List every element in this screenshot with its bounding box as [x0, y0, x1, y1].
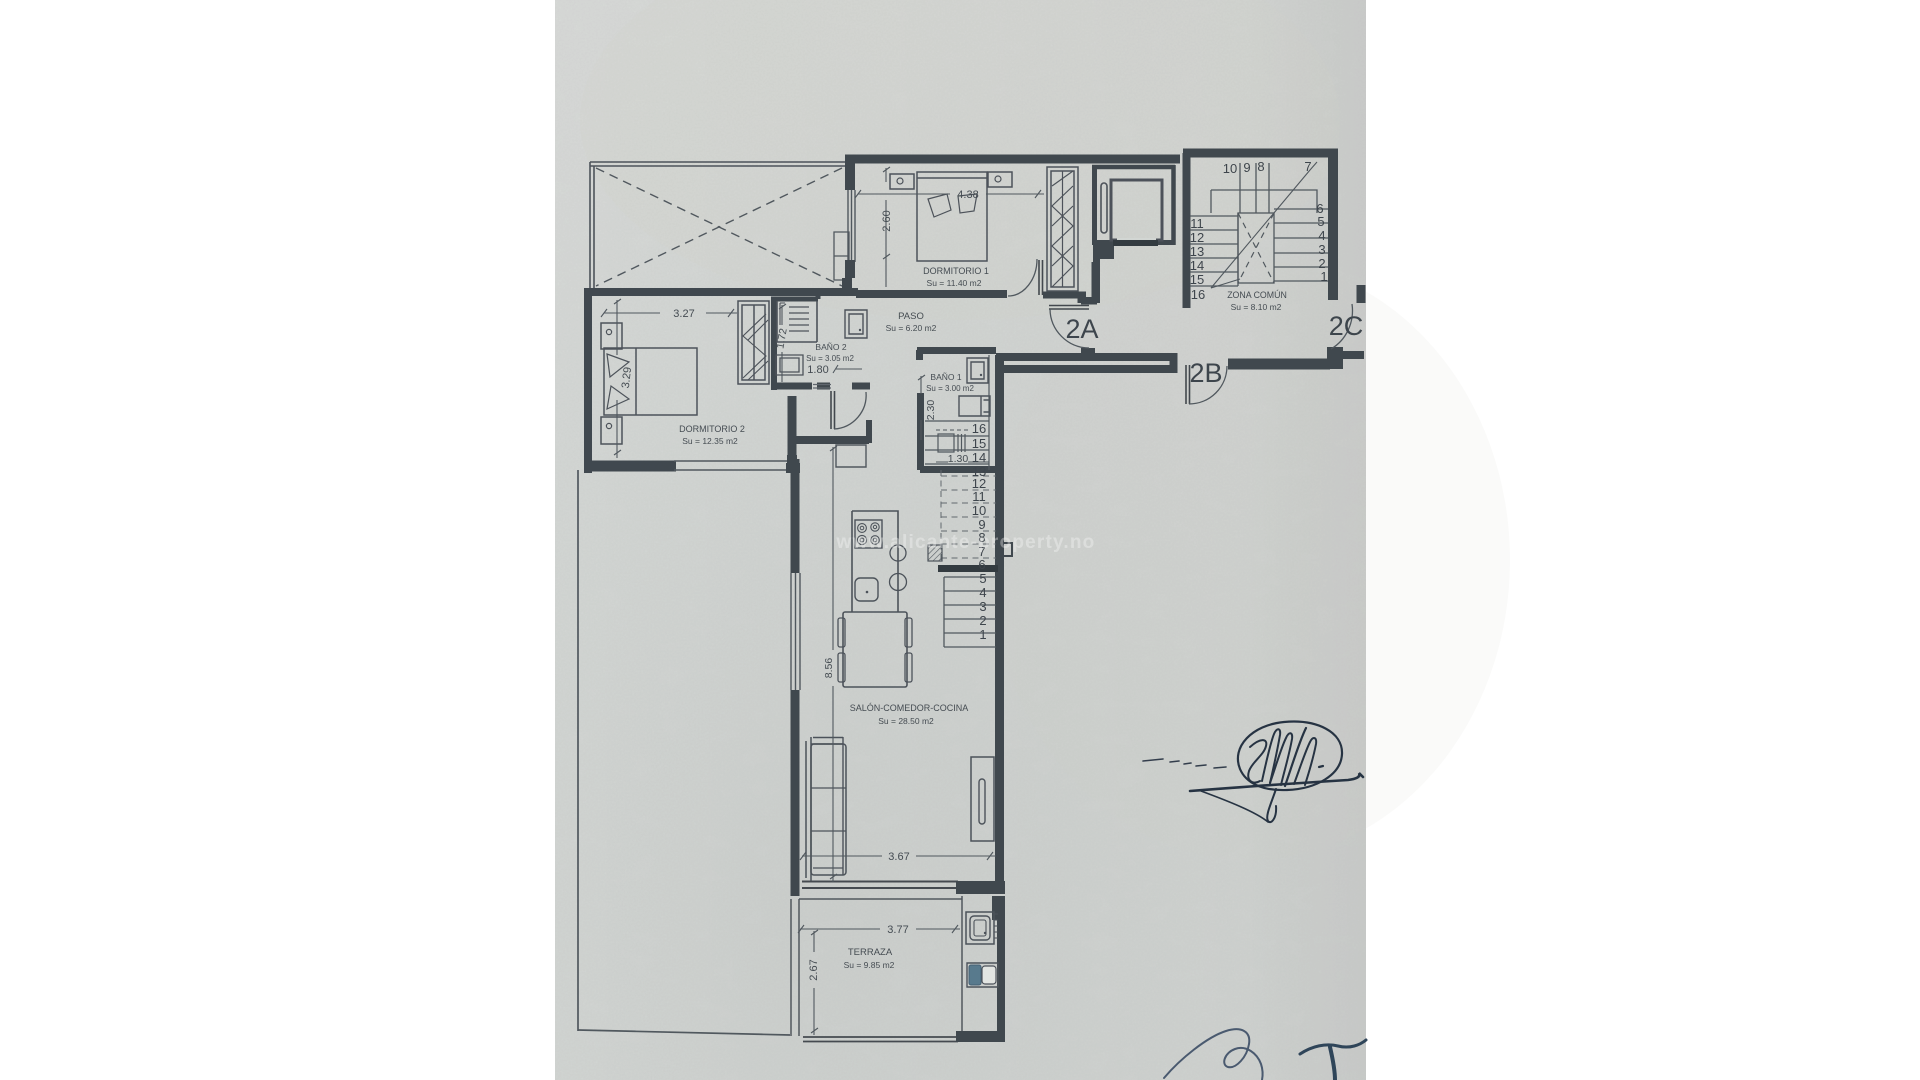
svg-text:16: 16 [972, 421, 986, 436]
svg-text:15: 15 [972, 436, 986, 451]
svg-text:15: 15 [1190, 272, 1204, 287]
svg-text:3: 3 [979, 599, 986, 614]
svg-text:14: 14 [972, 450, 986, 465]
svg-text:Su = 8.10 m2: Su = 8.10 m2 [1231, 302, 1282, 312]
svg-text:4: 4 [979, 585, 986, 600]
svg-text:BAÑO 1: BAÑO 1 [930, 372, 961, 382]
svg-text:Su = 28.50 m2: Su = 28.50 m2 [878, 716, 934, 726]
svg-text:11: 11 [1190, 216, 1204, 231]
svg-text:4: 4 [1318, 228, 1325, 243]
svg-text:SALÓN-COMEDOR-COCINA: SALÓN-COMEDOR-COCINA [850, 703, 969, 713]
svg-text:1.80: 1.80 [807, 364, 828, 376]
svg-text:14: 14 [1190, 258, 1204, 273]
svg-text:BAÑO 2: BAÑO 2 [815, 342, 846, 352]
svg-text:5: 5 [1317, 214, 1324, 229]
svg-text:ZONA COMÚN: ZONA COMÚN [1227, 290, 1287, 300]
svg-text:DORMITORIO 2: DORMITORIO 2 [679, 424, 745, 434]
svg-text:2.30: 2.30 [925, 400, 937, 421]
svg-text:4.38: 4.38 [957, 189, 978, 201]
svg-text:2.60: 2.60 [881, 210, 893, 231]
svg-text:2: 2 [979, 613, 986, 628]
svg-text:5: 5 [979, 571, 986, 586]
svg-text:PASO: PASO [898, 311, 924, 322]
svg-text:TERRAZA: TERRAZA [848, 947, 893, 958]
svg-text:10: 10 [972, 503, 986, 518]
svg-text:DORMITORIO 1: DORMITORIO 1 [923, 266, 989, 276]
svg-text:www.alicante-property.no: www.alicante-property.no [836, 532, 1096, 553]
svg-text:Su = 3.00 m2: Su = 3.00 m2 [926, 384, 974, 393]
svg-text:3.67: 3.67 [888, 851, 909, 863]
svg-text:8: 8 [1257, 159, 1264, 174]
svg-text:10: 10 [1223, 161, 1237, 176]
svg-text:2B: 2B [1189, 358, 1222, 388]
svg-text:7: 7 [1304, 159, 1311, 174]
svg-text:3.77: 3.77 [887, 924, 908, 936]
svg-text:1.30: 1.30 [948, 453, 969, 465]
svg-text:1: 1 [1320, 269, 1327, 284]
svg-text:2.67: 2.67 [808, 959, 820, 980]
svg-text:Su = 9.85 m2: Su = 9.85 m2 [844, 960, 895, 970]
svg-text:6: 6 [978, 557, 985, 572]
svg-text:2A: 2A [1065, 314, 1098, 344]
svg-text:1: 1 [979, 627, 986, 642]
svg-text:Su = 12.35 m2: Su = 12.35 m2 [682, 436, 738, 446]
svg-text:3.27: 3.27 [673, 308, 694, 320]
svg-text:12: 12 [1190, 230, 1204, 245]
svg-text:11: 11 [972, 489, 986, 504]
svg-text:Su = 3.05 m2: Su = 3.05 m2 [806, 354, 854, 363]
svg-text:8.56: 8.56 [823, 658, 835, 679]
svg-text:16: 16 [1191, 287, 1205, 302]
svg-text:2C: 2C [1329, 311, 1364, 341]
svg-text:Su = 6.20 m2: Su = 6.20 m2 [886, 323, 937, 333]
svg-text:3: 3 [1318, 242, 1325, 257]
svg-text:13: 13 [1190, 244, 1204, 259]
svg-text:Su = 11.40 m2: Su = 11.40 m2 [927, 278, 982, 288]
svg-text:9: 9 [1243, 160, 1250, 175]
